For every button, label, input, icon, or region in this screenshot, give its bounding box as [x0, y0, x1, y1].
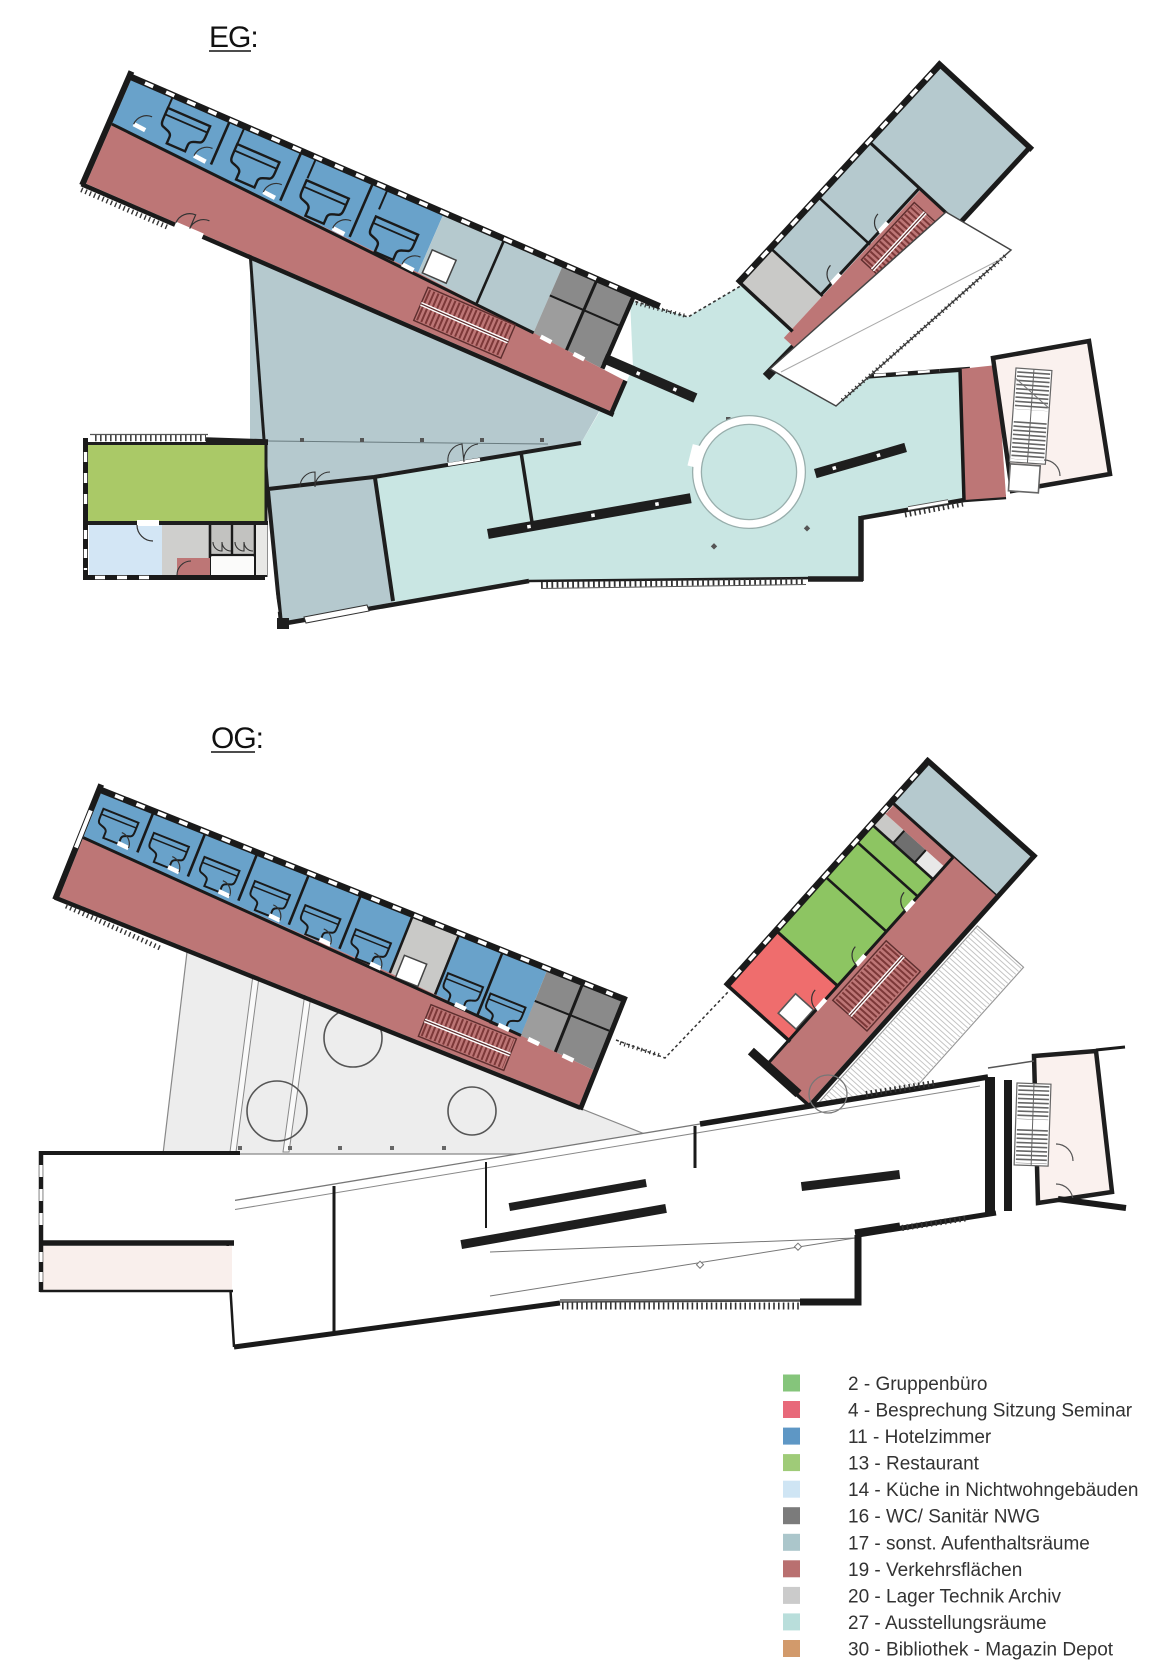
- svg-text:OG:: OG:: [211, 722, 263, 755]
- svg-text:16 - WC/ Sanitär NWG: 16 - WC/ Sanitär NWG: [848, 1507, 1040, 1528]
- svg-text:4 - Besprechung Sitzung Semina: 4 - Besprechung Sitzung Seminar: [848, 1401, 1133, 1422]
- svg-text:27 - Ausstellungsräume: 27 - Ausstellungsräume: [848, 1613, 1047, 1634]
- svg-text:30 - Bibliothek - Magazin Depo: 30 - Bibliothek - Magazin Depot: [848, 1640, 1114, 1661]
- svg-text:11 - Hotelzimmer: 11 - Hotelzimmer: [848, 1427, 992, 1448]
- svg-text:17 - sonst. Aufenthaltsräume: 17 - sonst. Aufenthaltsräume: [848, 1533, 1090, 1554]
- svg-text:19 - Verkehrsflächen: 19 - Verkehrsflächen: [848, 1560, 1022, 1581]
- svg-text:EG:: EG:: [209, 21, 258, 54]
- svg-text:14 - Küche in Nichtwohngebäude: 14 - Küche in Nichtwohngebäuden: [848, 1480, 1138, 1501]
- svg-text:13 - Restaurant: 13 - Restaurant: [848, 1454, 980, 1475]
- svg-text:20 - Lager Technik Archiv: 20 - Lager Technik Archiv: [848, 1586, 1061, 1607]
- svg-text:2 - Gruppenbüro: 2 - Gruppenbüro: [848, 1374, 987, 1395]
